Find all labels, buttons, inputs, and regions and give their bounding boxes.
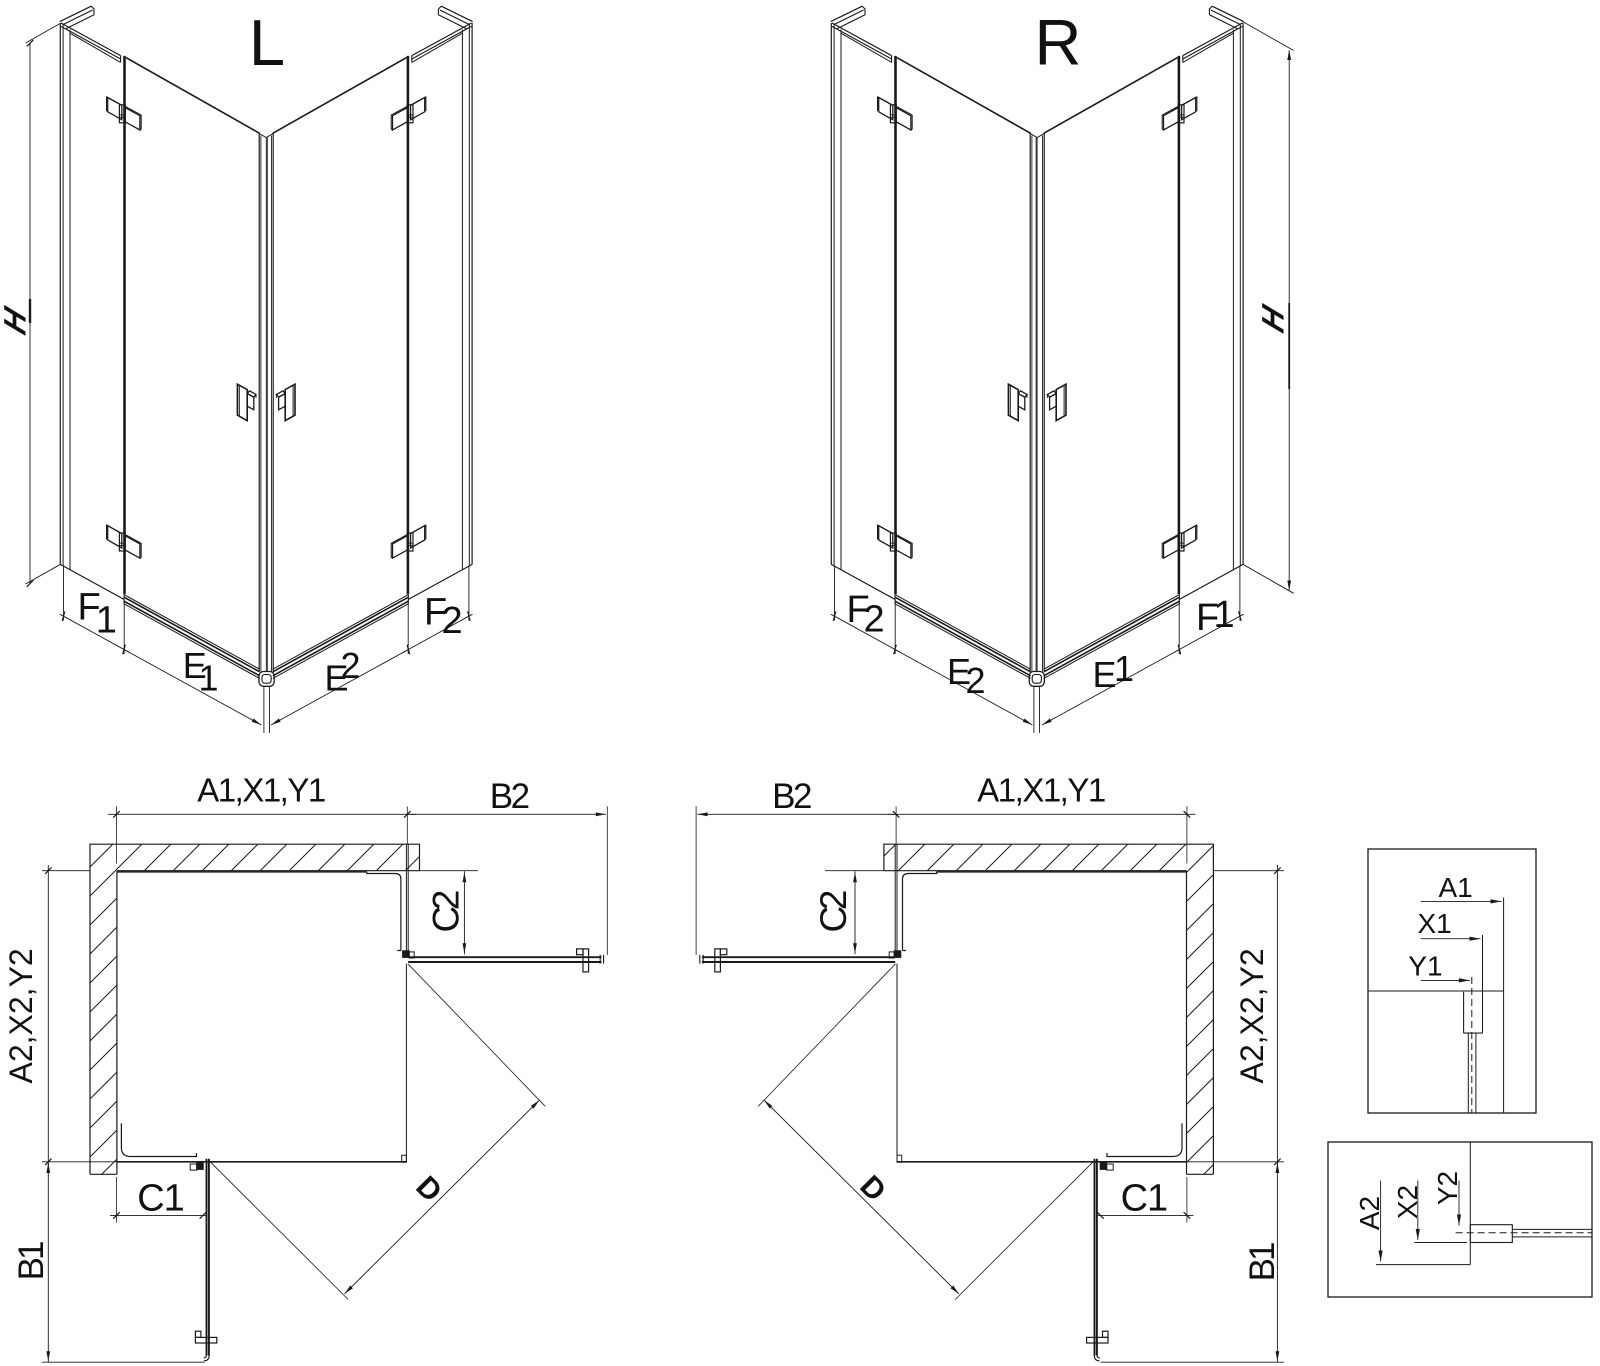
svg-text:B1: B1 bbox=[12, 1242, 51, 1280]
svg-text:L: L bbox=[249, 6, 285, 79]
svg-text:A1,X1,Y1: A1,X1,Y1 bbox=[197, 772, 325, 809]
svg-text:A1: A1 bbox=[1438, 872, 1472, 903]
svg-text:X2: X2 bbox=[1392, 1185, 1423, 1219]
svg-text:B2: B2 bbox=[772, 777, 811, 816]
svg-text:Y2: Y2 bbox=[1432, 1171, 1463, 1205]
svg-text:A2,X2,Y2: A2,X2,Y2 bbox=[1234, 948, 1270, 1083]
svg-text:A2,X2,Y2: A2,X2,Y2 bbox=[3, 948, 39, 1083]
svg-text:B1: B1 bbox=[1243, 1243, 1282, 1281]
svg-text:R: R bbox=[1035, 6, 1082, 79]
svg-text:A1,X1,Y1: A1,X1,Y1 bbox=[977, 772, 1105, 809]
svg-text:A2: A2 bbox=[1354, 1196, 1385, 1230]
svg-text:E1: E1 bbox=[1093, 648, 1135, 695]
svg-text:C1: C1 bbox=[137, 1178, 184, 1220]
svg-text:X1: X1 bbox=[1417, 908, 1451, 939]
svg-text:F1: F1 bbox=[1196, 594, 1235, 639]
svg-text:C2: C2 bbox=[425, 891, 466, 932]
svg-text:Y1: Y1 bbox=[1408, 950, 1442, 981]
svg-text:B2: B2 bbox=[490, 777, 529, 816]
svg-text:C1: C1 bbox=[1121, 1178, 1168, 1220]
svg-text:C2: C2 bbox=[813, 891, 854, 932]
